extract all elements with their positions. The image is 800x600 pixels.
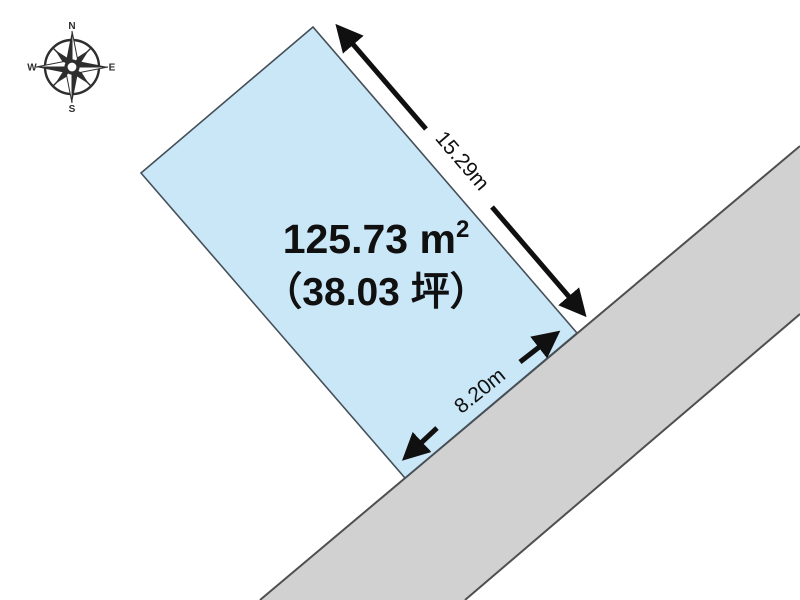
area-label-sqm: 125.73 m2 [283,216,470,262]
compass-label-north: N [68,21,75,32]
compass-hub [66,61,78,73]
area-unit-exponent: 2 [456,216,469,243]
compass-rose: N E S W [27,21,115,115]
compass-label-south: S [69,104,76,115]
area-unit: m [419,216,455,262]
compass-label-east: E [109,63,116,74]
area-value: 125.73 [283,216,420,262]
compass-label-west: W [27,63,37,74]
diagram-canvas: 15.29m 8.20m 125.73 m2 （38.03 坪） [0,0,800,600]
land-plot-diagram: 15.29m 8.20m 125.73 m2 （38.03 坪） [0,0,800,600]
area-label-tsubo: （38.03 坪） [263,271,488,314]
